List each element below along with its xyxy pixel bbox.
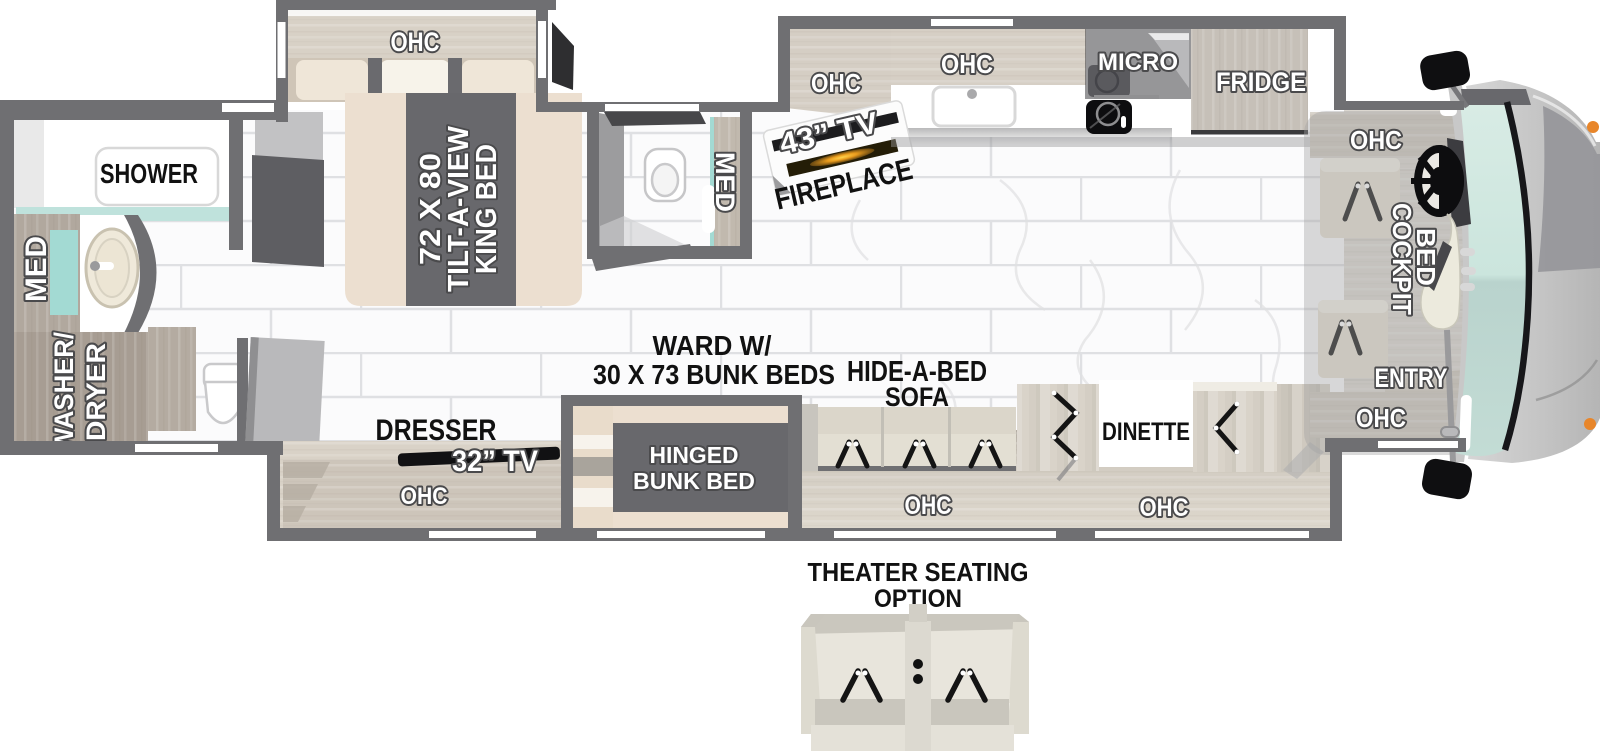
svg-text:OHC: OHC xyxy=(811,68,861,98)
svg-text:THEATER SEATING: THEATER SEATING xyxy=(808,557,1029,587)
svg-text:FRIDGE: FRIDGE xyxy=(1216,67,1306,97)
svg-text:OHC: OHC xyxy=(401,483,448,510)
svg-text:OHC: OHC xyxy=(1350,125,1402,155)
svg-text:SHOWER: SHOWER xyxy=(100,158,198,189)
svg-text:WASHER/: WASHER/ xyxy=(49,332,79,452)
svg-text:MICRO: MICRO xyxy=(1098,49,1178,76)
svg-text:KING BED: KING BED xyxy=(471,144,503,274)
svg-text:MED: MED xyxy=(20,236,53,302)
svg-text:MED: MED xyxy=(710,152,740,212)
svg-text:BUNK BED: BUNK BED xyxy=(633,468,755,494)
svg-text:OHC: OHC xyxy=(1140,494,1189,522)
svg-text:32” TV: 32” TV xyxy=(452,445,538,478)
svg-text:DRYER: DRYER xyxy=(81,343,111,441)
svg-text:OHC: OHC xyxy=(941,49,993,79)
svg-text:OHC: OHC xyxy=(391,27,440,57)
svg-text:ENTRY: ENTRY xyxy=(1375,363,1448,393)
svg-text:HINGED: HINGED xyxy=(650,442,739,468)
svg-text:30 X 73 BUNK BEDS: 30 X 73 BUNK BEDS xyxy=(593,359,835,390)
svg-text:WARD W/: WARD W/ xyxy=(653,330,772,361)
svg-text:BED: BED xyxy=(1411,228,1441,286)
svg-text:OHC: OHC xyxy=(905,492,952,520)
svg-text:DINETTE: DINETTE xyxy=(1102,418,1190,446)
svg-text:SOFA: SOFA xyxy=(885,382,949,412)
svg-text:OHC: OHC xyxy=(1356,403,1406,433)
svg-text:DRESSER: DRESSER xyxy=(376,414,497,447)
